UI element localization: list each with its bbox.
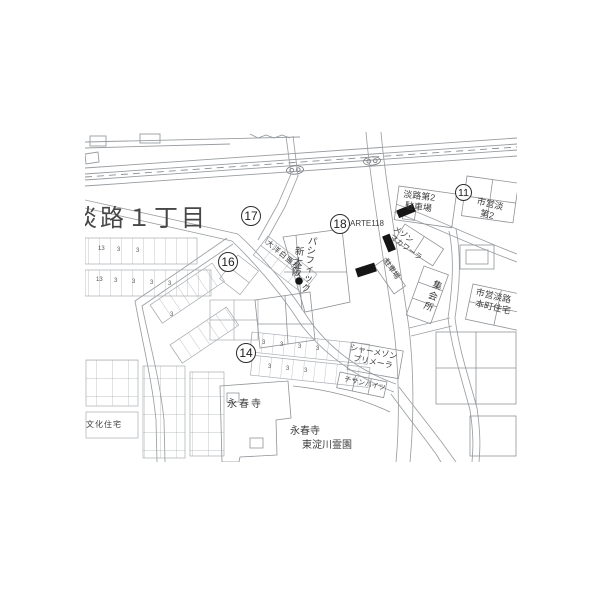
parcel-number: 3 <box>168 281 171 288</box>
map-canvas: 淡路１丁目 17 16 18 11 14 ARTE118 淡路第2 駐車場 市営… <box>0 0 600 600</box>
arte118-label: ARTE118 <box>350 219 384 229</box>
marker-17-number: 17 <box>244 209 257 223</box>
parcel-number: 3 <box>304 368 307 375</box>
parcel-number: 3 <box>136 248 139 255</box>
marker-16: 16 <box>218 252 238 272</box>
parcel-number: 3 <box>286 366 289 373</box>
small-parking-label: 駐車場 <box>382 257 402 281</box>
map-label-layer: 淡路１丁目 17 16 18 11 14 ARTE118 淡路第2 駐車場 市営… <box>0 0 600 600</box>
municipal-no2-label: 市営淡 第2 <box>473 196 504 223</box>
parcel-number: 3 <box>170 312 173 319</box>
marker-16-number: 16 <box>221 255 234 269</box>
honmachi-housing-label: 市営淡路 本町住宅 <box>472 287 514 317</box>
temple-label: 永春寺 <box>227 399 263 411</box>
marker-17: 17 <box>241 206 261 226</box>
parcel-number: 3 <box>150 280 153 287</box>
marker-18: 18 <box>330 214 350 234</box>
maison-label: メゾン マカワーラ <box>386 224 429 262</box>
marker-14: 14 <box>236 343 256 363</box>
parcel-number: 3 <box>268 364 271 371</box>
parcel-number: 3 <box>262 340 265 347</box>
chisan-heights-label: チサンハイツ <box>343 376 386 394</box>
pacific-building-label-col2: パシフィック <box>298 235 317 293</box>
parcel-number: 13 <box>96 277 103 284</box>
parcel-number: 13 <box>98 246 105 253</box>
parcel-number: 3 <box>298 344 301 351</box>
meeting-hall-label: 集会所 <box>419 278 442 314</box>
marker-11: 11 <box>455 184 472 201</box>
marker-18-number: 18 <box>333 217 346 231</box>
cemetery-line2: 東淀川霊園 <box>302 439 352 453</box>
parcel-number: 3 <box>316 346 319 353</box>
parcel-number: 3 <box>132 279 135 286</box>
marker-14-number: 14 <box>239 346 252 360</box>
parcel-number: 3 <box>114 278 117 285</box>
cemetery-label: 永春寺 東淀川霊園 <box>290 425 352 452</box>
parcel-number: 3 <box>117 247 120 254</box>
awaji-parking2-label: 淡路第2 駐車場 <box>401 189 435 214</box>
bunka-jutaku-label: 文化住宅 <box>86 420 122 430</box>
marker-11-number: 11 <box>458 187 469 199</box>
cemetery-line1: 永春寺 <box>290 425 352 439</box>
parcel-number: 3 <box>280 342 283 349</box>
shamaison-label: シャーメゾン プリメーラ <box>347 343 397 371</box>
district-label: 淡路１丁目 <box>73 205 208 234</box>
